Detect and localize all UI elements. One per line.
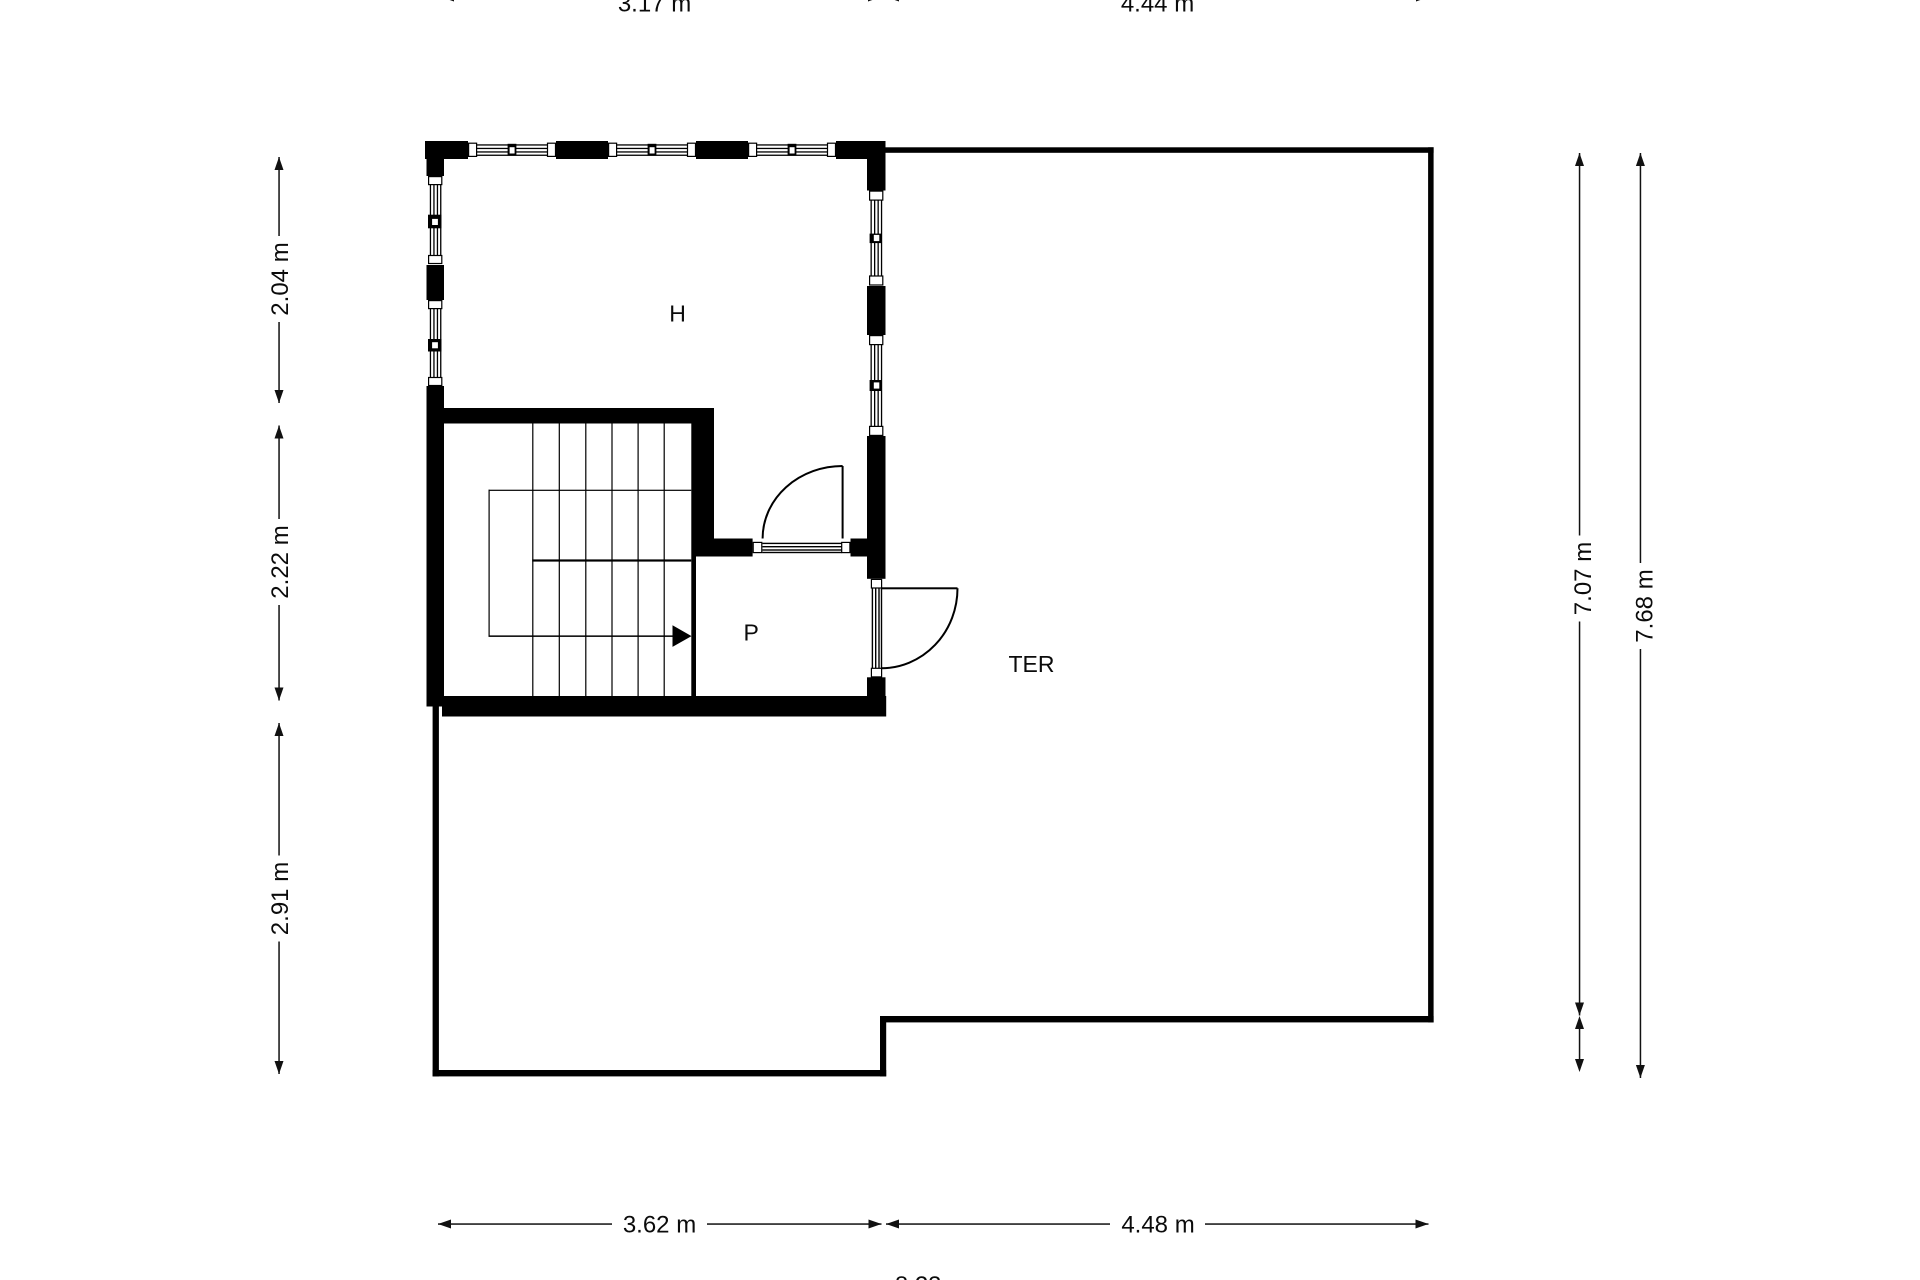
svg-text:3.62 m: 3.62 m xyxy=(623,1211,696,1238)
svg-text:8.23 m: 8.23 m xyxy=(895,1272,968,1280)
svg-text:P: P xyxy=(744,620,759,646)
svg-text:7.07 m: 7.07 m xyxy=(1570,542,1597,615)
svg-text:2.91 m: 2.91 m xyxy=(267,862,294,935)
svg-text:3.17 m: 3.17 m xyxy=(618,0,691,18)
svg-text:4.44 m: 4.44 m xyxy=(1121,0,1194,18)
svg-text:H: H xyxy=(669,300,686,326)
svg-text:TER: TER xyxy=(1009,651,1055,677)
svg-text:7.68 m: 7.68 m xyxy=(1632,569,1659,642)
svg-text:2.04 m: 2.04 m xyxy=(267,242,294,315)
svg-text:2.22 m: 2.22 m xyxy=(267,525,294,598)
svg-text:4.48 m: 4.48 m xyxy=(1121,1211,1194,1238)
